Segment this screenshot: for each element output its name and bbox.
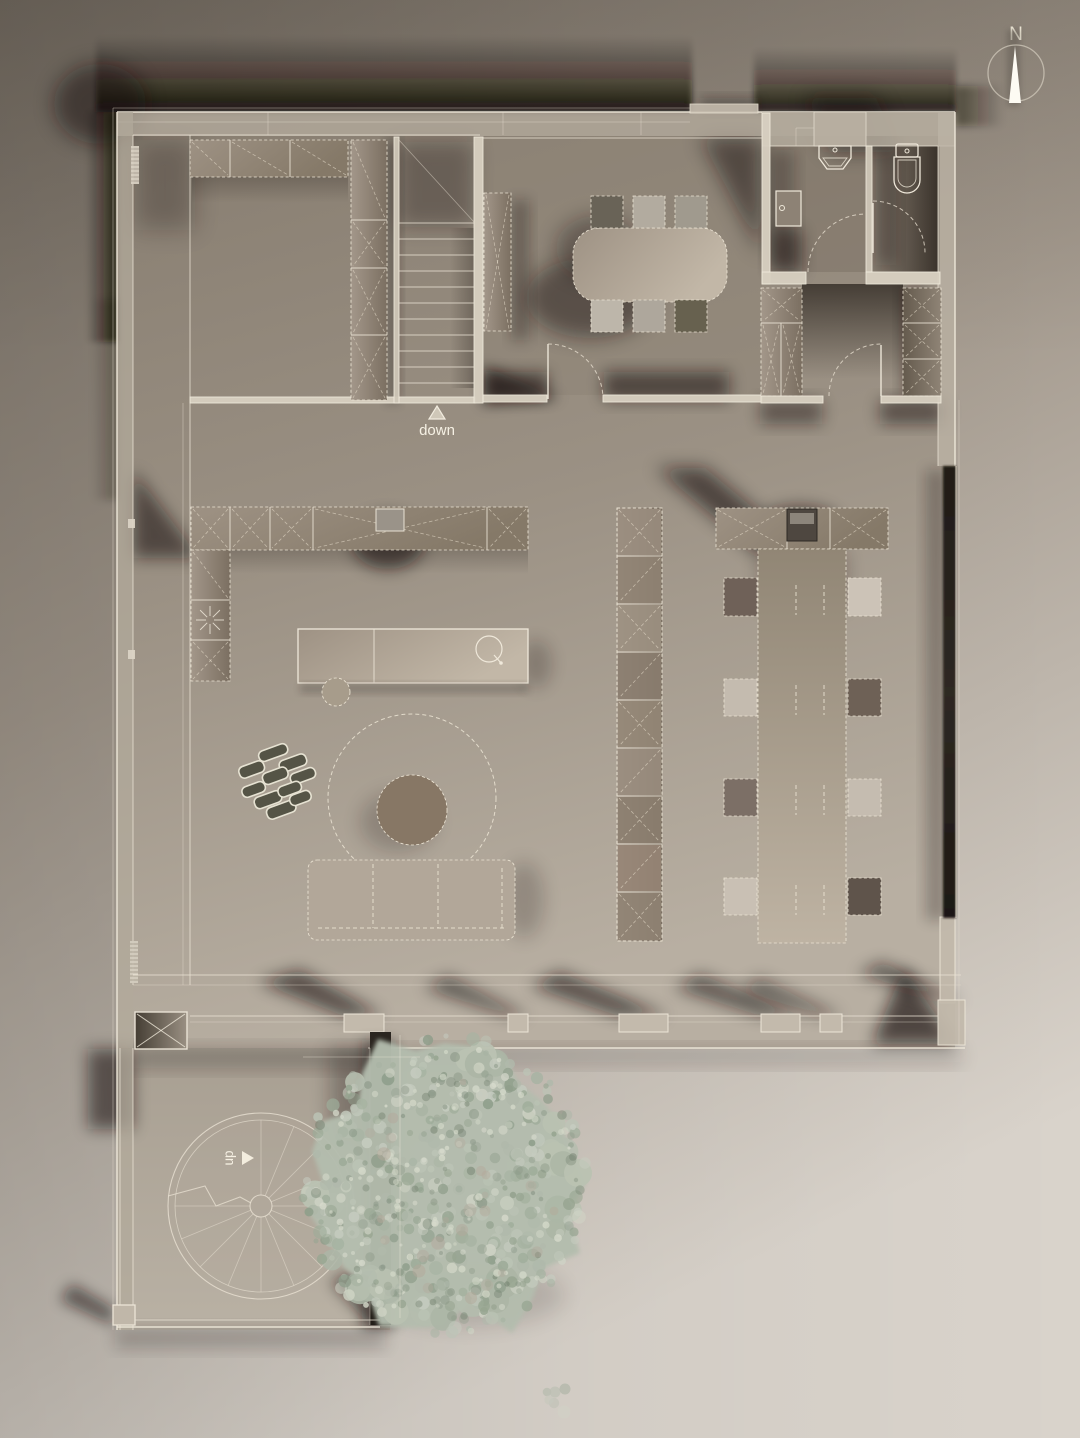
svg-text:down: down [419, 422, 455, 439]
svg-text:up: up [221, 1150, 236, 1165]
